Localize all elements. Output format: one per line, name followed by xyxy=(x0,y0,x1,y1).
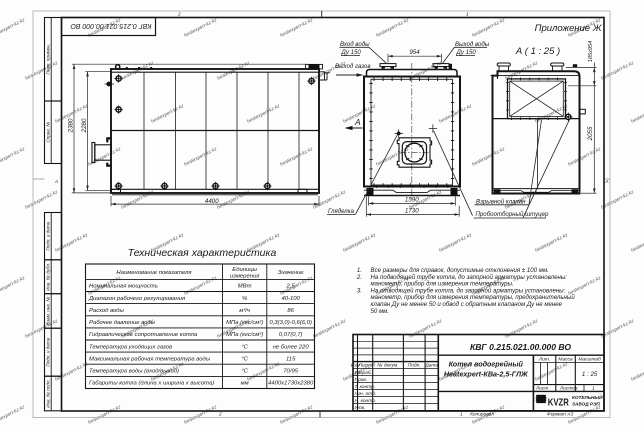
svg-text:Номинальная мощность: Номинальная мощность xyxy=(89,284,158,290)
svg-text:Н. контр.: Н. контр. xyxy=(355,398,377,404)
svg-text:МВт: МВт xyxy=(238,284,252,290)
svg-text:Heatexpert-КВа-2,5-ГЛЖ: Heatexpert-КВа-2,5-ГЛЖ xyxy=(444,370,528,379)
svg-text:1590: 1590 xyxy=(405,197,419,204)
svg-text:heatexpert-kz.kz: heatexpert-kz.kz xyxy=(342,232,377,254)
svg-text:4400х1730х2380: 4400х1730х2380 xyxy=(268,381,314,387)
svg-text:heatexpert-kz.kz: heatexpert-kz.kz xyxy=(0,146,26,168)
svg-text:heatexpert-kz.kz: heatexpert-kz.kz xyxy=(279,146,314,168)
svg-text:heatexpert-kz.kz: heatexpert-kz.kz xyxy=(375,17,410,39)
svg-text:Утв.: Утв. xyxy=(355,405,366,411)
svg-text:№ докум.: № докум. xyxy=(377,362,398,368)
svg-text:Максимальная рабочая температу: Максимальная рабочая температура воды xyxy=(89,356,211,362)
svg-text:0,07(0,7): 0,07(0,7) xyxy=(279,332,303,338)
svg-text:Подп. и дата: Подп. и дата xyxy=(45,337,50,366)
svg-text:heatexpert-kz.kz: heatexpert-kz.kz xyxy=(600,60,635,82)
svg-text:1: 1 xyxy=(460,411,463,417)
svg-text:Инв. № подл.: Инв. № подл. xyxy=(45,379,50,408)
svg-text:клапан Ду не менее 50 и обвод: клапан Ду не менее 50 и обвод с обратным… xyxy=(371,301,563,308)
svg-text:Масштаб: Масштаб xyxy=(578,356,601,362)
svg-text:heatexpert-kz.kz: heatexpert-kz.kz xyxy=(24,189,59,211)
svg-text:°С: °С xyxy=(241,356,248,362)
svg-text:heatexpert-kz.kz: heatexpert-kz.kz xyxy=(438,232,473,254)
svg-text:ЗАВОД РЭП: ЗАВОД РЭП xyxy=(572,401,600,406)
svg-text:heatexpert-kz.kz: heatexpert-kz.kz xyxy=(630,361,644,383)
svg-text:Т. контр.: Т. контр. xyxy=(355,384,376,390)
svg-text:heatexpert-kz.kz: heatexpert-kz.kz xyxy=(183,275,218,297)
svg-text:А ( 1 : 25 ): А ( 1 : 25 ) xyxy=(515,46,560,57)
svg-text:Масса: Масса xyxy=(558,356,573,362)
svg-text:КОТЕЛЬНЫЙ: КОТЕЛЬНЫЙ xyxy=(572,393,603,400)
svg-text:Перв. примен.: Перв. примен. xyxy=(45,44,50,75)
svg-text:Диапазон рабочего регулировани: Диапазон рабочего регулирования xyxy=(88,296,186,302)
svg-text:измерения: измерения xyxy=(230,274,260,280)
svg-text:4400: 4400 xyxy=(205,198,219,205)
svg-text:Пробоотборный штуцер: Пробоотборный штуцер xyxy=(476,211,550,218)
svg-text:2055: 2055 xyxy=(587,126,594,141)
svg-text:КВГ 0.215.021.00.000 ВО: КВГ 0.215.021.00.000 ВО xyxy=(70,22,152,29)
svg-text:Температура воды (вход/выход): Температура воды (вход/выход) xyxy=(89,369,179,375)
svg-text:heatexpert-kz.kz: heatexpert-kz.kz xyxy=(120,60,155,82)
svg-text:Рабочее давление воды: Рабочее давление воды xyxy=(89,320,156,326)
svg-text:heatexpert-kz.kz: heatexpert-kz.kz xyxy=(24,318,59,340)
svg-text:А: А xyxy=(605,179,609,184)
svg-text:А: А xyxy=(354,117,361,127)
svg-text:Ду 150: Ду 150 xyxy=(456,49,477,56)
svg-text:heatexpert-kz.kz: heatexpert-kz.kz xyxy=(54,232,89,254)
svg-text:Приложение Ж: Приложение Ж xyxy=(535,23,603,34)
svg-text:heatexpert-kz.kz: heatexpert-kz.kz xyxy=(567,146,602,168)
svg-text:Габариты котла (длина х ширина: Габариты котла (длина х ширина х высота) xyxy=(89,381,214,387)
svg-text:Взрывной клапан: Взрывной клапан xyxy=(476,198,526,205)
svg-text:Подп. и дата: Подп. и дата xyxy=(45,221,50,250)
svg-text:Вход воды: Вход воды xyxy=(340,41,370,48)
svg-text:heatexpert-kz.kz: heatexpert-kz.kz xyxy=(279,404,314,426)
svg-text:Температура уходящих газов: Температура уходящих газов xyxy=(89,344,172,350)
svg-text:мм: мм xyxy=(241,381,249,387)
svg-text:heatexpert-kz.kz: heatexpert-kz.kz xyxy=(150,103,185,125)
svg-text:2280: 2280 xyxy=(81,118,88,133)
svg-text:1730: 1730 xyxy=(405,208,419,215)
svg-text:heatexpert-kz.kz: heatexpert-kz.kz xyxy=(534,103,569,125)
svg-text:heatexpert-kz.kz: heatexpert-kz.kz xyxy=(600,318,635,340)
svg-text:heatexpert-kz.kz: heatexpert-kz.kz xyxy=(471,146,506,168)
svg-text:heatexpert-kz.kz: heatexpert-kz.kz xyxy=(183,17,218,39)
svg-text:МПа (кгс/см²): МПа (кгс/см²) xyxy=(226,332,263,338)
svg-text:Лист: Лист xyxy=(358,362,371,368)
svg-text:heatexpert-kz.kz: heatexpert-kz.kz xyxy=(375,404,410,426)
svg-text:50 мм.: 50 мм. xyxy=(371,308,390,315)
svg-text:heatexpert-kz.kz: heatexpert-kz.kz xyxy=(471,17,506,39)
svg-text:heatexpert-kz.kz: heatexpert-kz.kz xyxy=(0,404,26,426)
svg-text:м³/ч: м³/ч xyxy=(239,308,250,314)
svg-text:Единицы: Единицы xyxy=(232,267,257,273)
svg-text:Наименование показателя: Наименование показателя xyxy=(116,270,192,276)
svg-text:2,5: 2,5 xyxy=(286,284,296,290)
svg-text:Лист: Лист xyxy=(535,386,548,392)
svg-text:%: % xyxy=(242,296,247,302)
svg-text:heatexpert-kz.kz: heatexpert-kz.kz xyxy=(87,404,122,426)
svg-text:Копировал: Копировал xyxy=(470,411,494,417)
svg-text:Значение: Значение xyxy=(278,270,305,276)
svg-text:Выход воды: Выход воды xyxy=(455,41,490,48)
svg-text:heatexpert-kz.kz: heatexpert-kz.kz xyxy=(0,275,26,297)
svg-text:heatexpert-kz.kz: heatexpert-kz.kz xyxy=(279,17,314,39)
svg-text:не более 220: не более 220 xyxy=(273,344,310,350)
svg-text:А: А xyxy=(54,179,58,184)
svg-text:heatexpert-kz.kz: heatexpert-kz.kz xyxy=(630,232,644,254)
svg-text:heatexpert-kz.kz: heatexpert-kz.kz xyxy=(216,60,251,82)
svg-text:70/95: 70/95 xyxy=(283,369,298,375)
svg-text:heatexpert-kz.kz: heatexpert-kz.kz xyxy=(24,60,59,82)
svg-text:Гляделка: Гляделка xyxy=(328,208,355,215)
svg-text:heatexpert-kz.kz: heatexpert-kz.kz xyxy=(630,103,644,125)
svg-text:heatexpert-kz.kz: heatexpert-kz.kz xyxy=(600,189,635,211)
svg-text:Гидравлическое сопротивление к: Гидравлическое сопротивление котла xyxy=(89,332,198,338)
svg-text:heatexpert-kz.kz: heatexpert-kz.kz xyxy=(534,361,569,383)
svg-text:2.: 2. xyxy=(356,274,362,281)
svg-text:КВГ 0.215.021.00.000 ВО: КВГ 0.215.021.00.000 ВО xyxy=(470,342,571,352)
svg-text:heatexpert-kz.kz: heatexpert-kz.kz xyxy=(183,146,218,168)
svg-text:МПа (кгс/см²): МПа (кгс/см²) xyxy=(226,320,263,326)
svg-text:Техническая характеристика: Техническая характеристика xyxy=(128,247,277,259)
svg-text:Лит.: Лит. xyxy=(538,356,550,362)
svg-text:40-100: 40-100 xyxy=(281,296,300,302)
svg-text:2: 2 xyxy=(218,411,222,417)
svg-text:2: 2 xyxy=(177,11,181,17)
svg-text:heatexpert-kz.kz: heatexpert-kz.kz xyxy=(183,404,218,426)
svg-text:Инв. № дубл.: Инв. № дубл. xyxy=(45,263,50,291)
svg-text:heatexpert-kz.kz: heatexpert-kz.kz xyxy=(534,232,569,254)
svg-text:0,3(3,0)-0,6(6,0): 0,3(3,0)-0,6(6,0) xyxy=(269,320,312,326)
svg-text:954: 954 xyxy=(409,49,420,56)
svg-text:Подп.: Подп. xyxy=(408,362,421,368)
svg-text:Котел водогрейный: Котел водогрейный xyxy=(449,360,524,369)
svg-text:heatexpert-kz.kz: heatexpert-kz.kz xyxy=(438,103,473,125)
svg-text:185х954: 185х954 xyxy=(588,41,594,62)
svg-text:1: 1 xyxy=(466,11,469,17)
svg-text:Ду 150: Ду 150 xyxy=(341,49,362,56)
svg-text:Расход воды: Расход воды xyxy=(89,308,125,314)
svg-text:heatexpert-kz.kz: heatexpert-kz.kz xyxy=(54,361,89,383)
svg-text:1 : 25: 1 : 25 xyxy=(582,371,598,378)
svg-text:Справ. №: Справ. № xyxy=(45,122,50,143)
svg-text:Формат А3: Формат А3 xyxy=(547,411,574,417)
svg-text:Пров.: Пров. xyxy=(355,377,368,383)
svg-text:heatexpert-kz.kz: heatexpert-kz.kz xyxy=(504,318,539,340)
svg-text:Выход газов: Выход газов xyxy=(335,63,371,70)
svg-text:Листов: Листов xyxy=(559,386,578,392)
svg-text:Разраб.: Разраб. xyxy=(355,370,372,376)
svg-text:Взам. инв. №: Взам. инв. № xyxy=(45,297,50,325)
svg-text:heatexpert-kz.kz: heatexpert-kz.kz xyxy=(246,103,281,125)
svg-text:°С: °С xyxy=(241,369,248,375)
svg-text:KVZR: KVZR xyxy=(548,396,569,408)
svg-text:Нач. отд.: Нач. отд. xyxy=(355,391,377,397)
svg-text:heatexpert-kz.kz: heatexpert-kz.kz xyxy=(0,17,26,39)
svg-text:Дата: Дата xyxy=(424,362,438,368)
svg-text:2380: 2380 xyxy=(67,118,74,133)
svg-text:heatexpert-kz.kz: heatexpert-kz.kz xyxy=(279,275,314,297)
svg-text:°С: °С xyxy=(241,344,248,350)
svg-text:115: 115 xyxy=(286,356,296,362)
svg-text:1: 1 xyxy=(592,386,595,392)
svg-text:86: 86 xyxy=(287,308,294,314)
svg-text:3.: 3. xyxy=(357,287,362,294)
svg-text:heatexpert-kz.kz: heatexpert-kz.kz xyxy=(312,318,347,340)
